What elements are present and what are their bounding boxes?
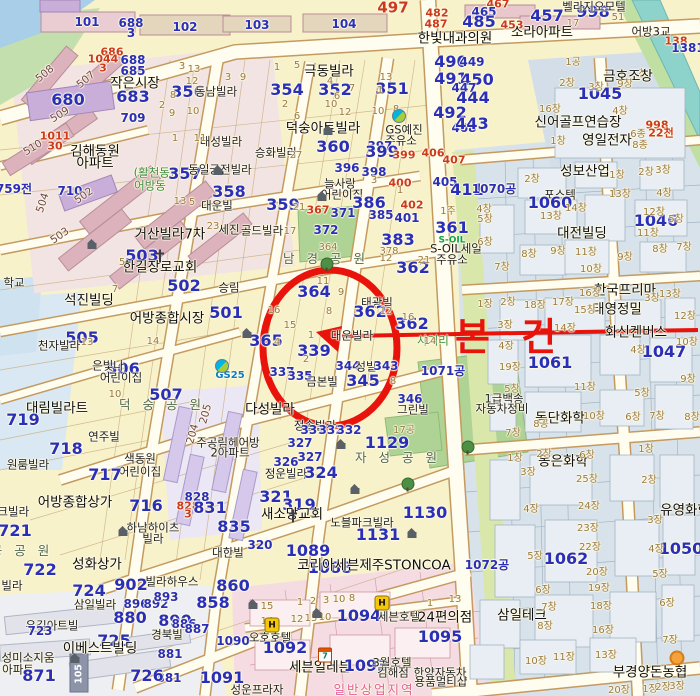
namgyeong-park [298, 206, 360, 262]
map-graphics [0, 0, 700, 696]
annotation-label: 본 건 [455, 318, 565, 356]
map-canvas[interactable]: 1011021031046883497482487467465485457453… [0, 0, 700, 696]
jaseong-park [385, 412, 442, 456]
